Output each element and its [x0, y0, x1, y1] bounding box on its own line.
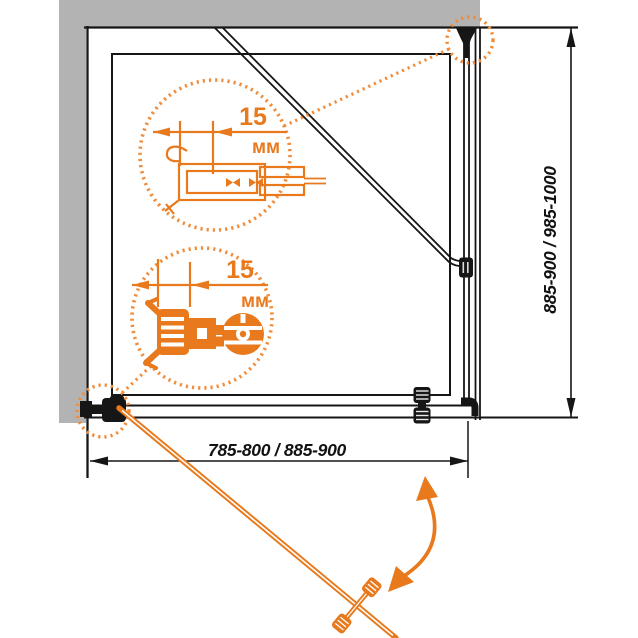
callout-top-unit: мм	[252, 137, 280, 158]
height-dimension-label: 885-900 / 985-1000	[540, 166, 560, 314]
callout-leaders	[77, 17, 493, 437]
swing-arrow-icon	[388, 476, 438, 592]
height-dimension: 885-900 / 985-1000	[540, 28, 576, 417]
fixed-panel-right	[464, 27, 480, 420]
installation-diagram-page: 785-800 / 885-900 885-900 / 985-1000	[0, 0, 638, 638]
wall-left	[59, 0, 86, 423]
callout-bottom-value: 15	[226, 256, 254, 284]
installation-diagram: 785-800 / 885-900 885-900 / 985-1000	[0, 0, 638, 638]
wall-profile-bracket-icon	[456, 28, 477, 58]
closed-door	[84, 406, 578, 418]
enclosure-frame	[84, 26, 578, 478]
width-dimension-label: 785-800 / 885-900	[208, 440, 347, 460]
callout-top-value: 15	[239, 103, 267, 131]
door-handle-icon	[331, 576, 383, 635]
door-hinge-detail: 15 мм	[132, 256, 269, 368]
leader-line-bottom	[122, 366, 151, 393]
wall-top	[59, 0, 480, 27]
wall-profile-detail: 15 мм	[153, 103, 326, 214]
open-door	[99, 383, 417, 638]
callout-bottom-unit: мм	[241, 291, 269, 312]
support-bar-clamp-icon	[459, 258, 473, 278]
corner-connector-icon	[461, 401, 475, 416]
